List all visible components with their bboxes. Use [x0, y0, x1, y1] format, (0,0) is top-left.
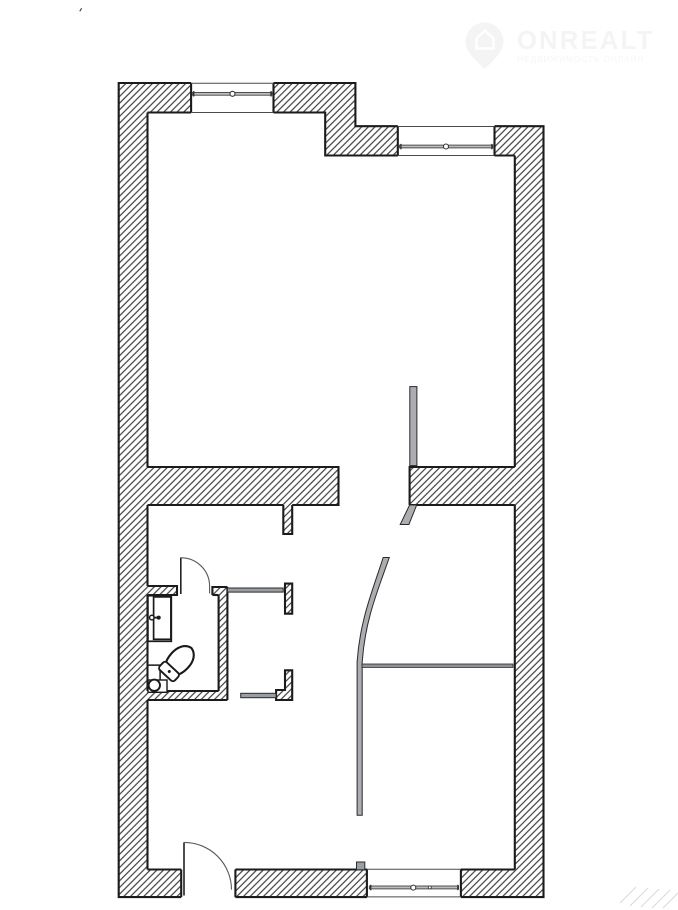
svg-text:ONREALT: ONREALT	[517, 27, 654, 55]
svg-text:НЕДВИЖИМОСТЬ ОНЛАЙН: НЕДВИЖИМОСТЬ ОНЛАЙН	[517, 53, 644, 64]
